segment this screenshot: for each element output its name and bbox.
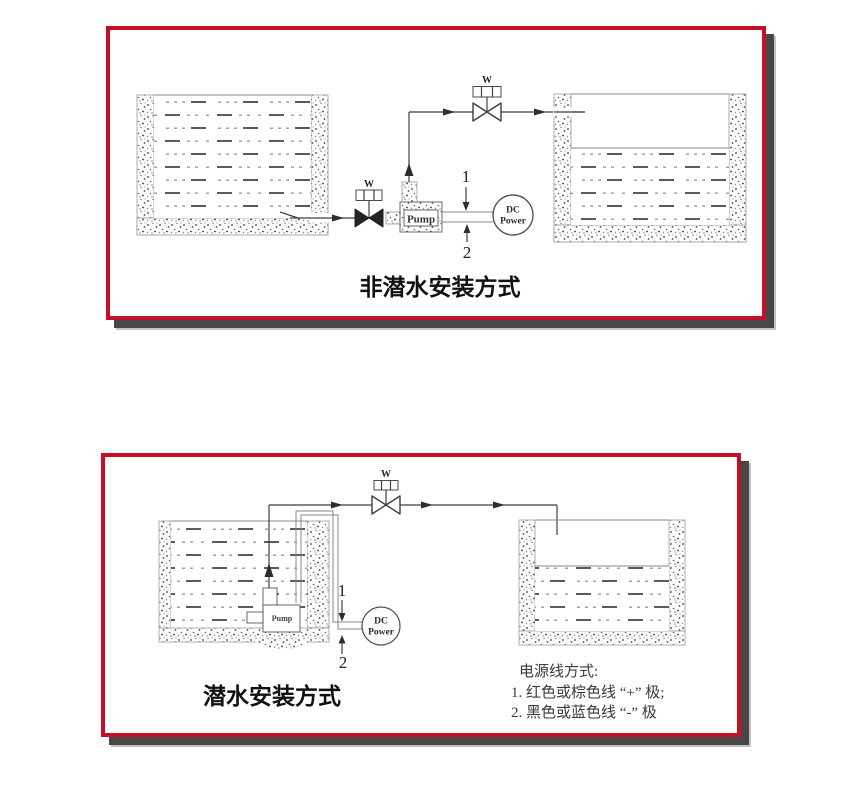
- bottom-diagram-panel: Pump W: [101, 453, 741, 737]
- valve-w-label: W: [381, 469, 391, 480]
- bottom-left-tank: [159, 521, 329, 642]
- bottom-valve: W: [372, 469, 400, 514]
- bottom-diagram-title: 潜水安装方式: [203, 683, 341, 709]
- top-diagram: W Pump: [110, 30, 762, 316]
- bottom-dc-power: DC Power: [362, 607, 400, 645]
- top-diagram-panel: W Pump: [106, 26, 766, 320]
- dc-power-line1: DC: [374, 617, 388, 627]
- wire-1-label: 1: [462, 167, 471, 186]
- notes-item-1: 1. 红色或棕色线 “+” 极;: [511, 684, 664, 701]
- top-left-tank: [137, 95, 329, 235]
- valve-w-label: W: [364, 179, 374, 190]
- dc-power-line2: Power: [500, 217, 527, 227]
- top-pump: Pump: [386, 182, 442, 232]
- pump-label: Pump: [407, 214, 435, 226]
- pump-label: Pump: [272, 614, 293, 623]
- bottom-right-tank: [519, 520, 685, 645]
- top-right-tank: [553, 94, 746, 242]
- dc-power-line2: Power: [368, 628, 395, 638]
- wire-1-label: 1: [338, 581, 347, 600]
- valve-w-label: W: [482, 75, 492, 86]
- top-inlet-valve: W: [355, 179, 383, 227]
- manual-page: W Pump: [0, 0, 854, 794]
- dc-power-line1: DC: [506, 206, 520, 216]
- top-dc-power: DC Power: [442, 195, 533, 235]
- bottom-wire-markers: 1 2: [338, 581, 348, 672]
- wire-2-label: 2: [339, 653, 348, 672]
- top-wire-markers: 1 2: [462, 167, 472, 262]
- top-outlet-valve: W: [473, 75, 501, 121]
- power-wire-notes: 电源线方式: 1. 红色或棕色线 “+” 极; 2. 黑色或蓝色线 “-” 极: [511, 663, 664, 721]
- notes-heading: 电源线方式:: [519, 663, 598, 680]
- bottom-diagram: Pump W: [105, 457, 737, 733]
- wire-2-label: 2: [463, 243, 472, 262]
- notes-item-2: 2. 黑色或蓝色线 “-” 极: [511, 704, 657, 721]
- top-diagram-title: 非潜水安装方式: [360, 274, 521, 300]
